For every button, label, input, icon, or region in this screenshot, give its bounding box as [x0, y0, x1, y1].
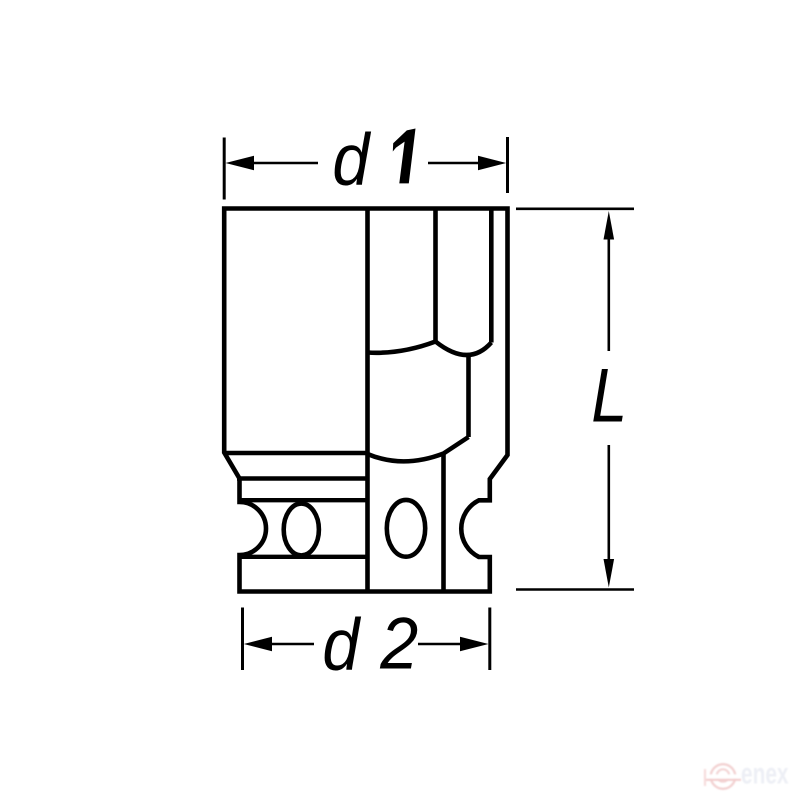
svg-text:d: d: [322, 605, 361, 686]
svg-text:2: 2: [379, 604, 418, 685]
svg-text:L: L: [591, 354, 627, 439]
svg-text:enex: enex: [741, 758, 789, 791]
svg-text:d: d: [332, 119, 371, 200]
